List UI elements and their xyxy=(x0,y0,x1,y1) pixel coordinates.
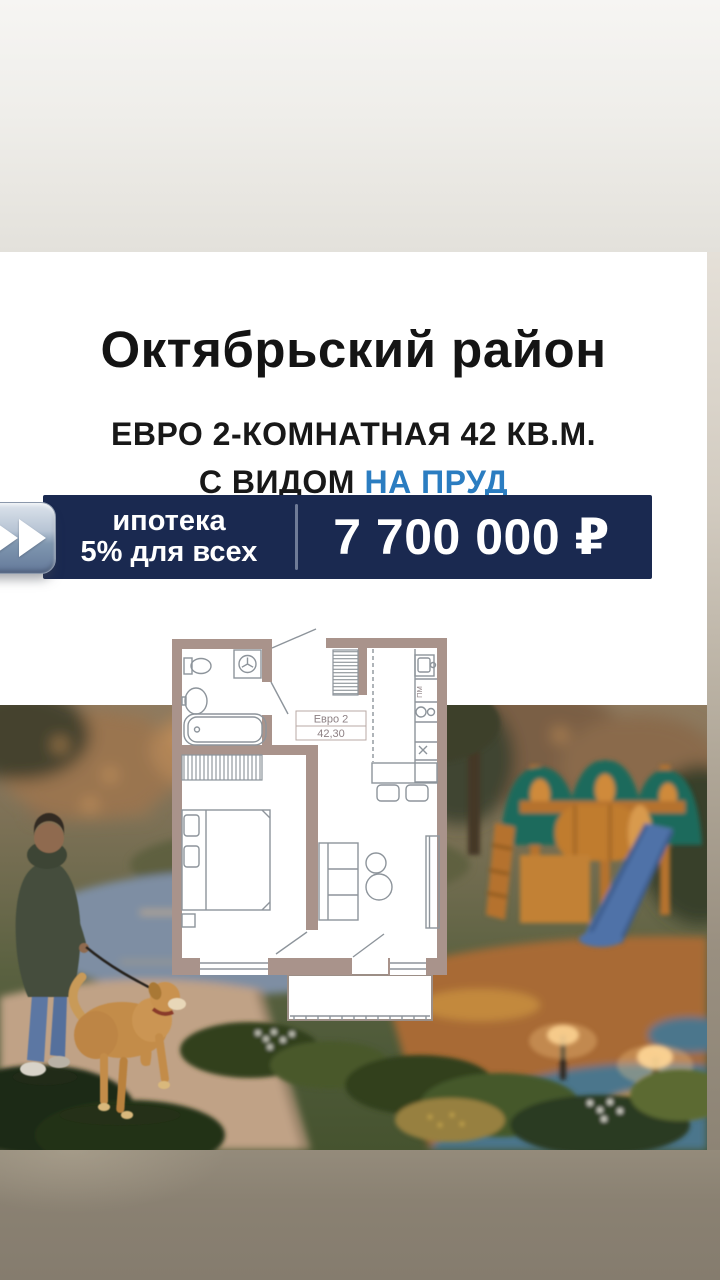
hall-closet xyxy=(333,650,358,695)
fast-forward-button[interactable] xyxy=(0,502,56,574)
floorplan-area-label: 42,30 xyxy=(317,728,345,740)
blurred-bottom-background xyxy=(0,1150,720,1280)
mortgage-offer: ипотека 5% для всех xyxy=(43,495,295,579)
floorplan-type-label: Евро 2 xyxy=(314,714,349,726)
wardrobe xyxy=(182,755,262,780)
apartment-subtitle: ЕВРО 2-КОМНАТНАЯ 42 КВ.М. xyxy=(0,414,707,454)
blurred-top-background xyxy=(0,0,720,252)
price-banner: ипотека 5% для всех 7 700 000 ₽ xyxy=(43,495,652,579)
banner-divider xyxy=(295,504,298,570)
mortgage-offer-line2: 5% для всех xyxy=(81,537,258,568)
balcony xyxy=(288,975,432,1020)
fast-forward-icon xyxy=(0,519,18,557)
story-ad: Октябрьский район ЕВРО 2-КОМНАТНАЯ 42 КВ… xyxy=(0,0,720,1280)
blurred-right-edge xyxy=(707,252,720,1150)
floorplan-label: Евро 2 42,30 xyxy=(296,711,366,740)
dishwasher-label: ПМ xyxy=(415,686,424,698)
floorplan-diagram: ПМ Евро 2 42,30 xyxy=(170,622,462,1026)
price-value: 7 700 000 ₽ xyxy=(299,495,644,581)
fast-forward-icon xyxy=(19,519,46,557)
page-title: Октябрьский район xyxy=(0,320,707,380)
mortgage-offer-line1: ипотека xyxy=(112,506,225,537)
